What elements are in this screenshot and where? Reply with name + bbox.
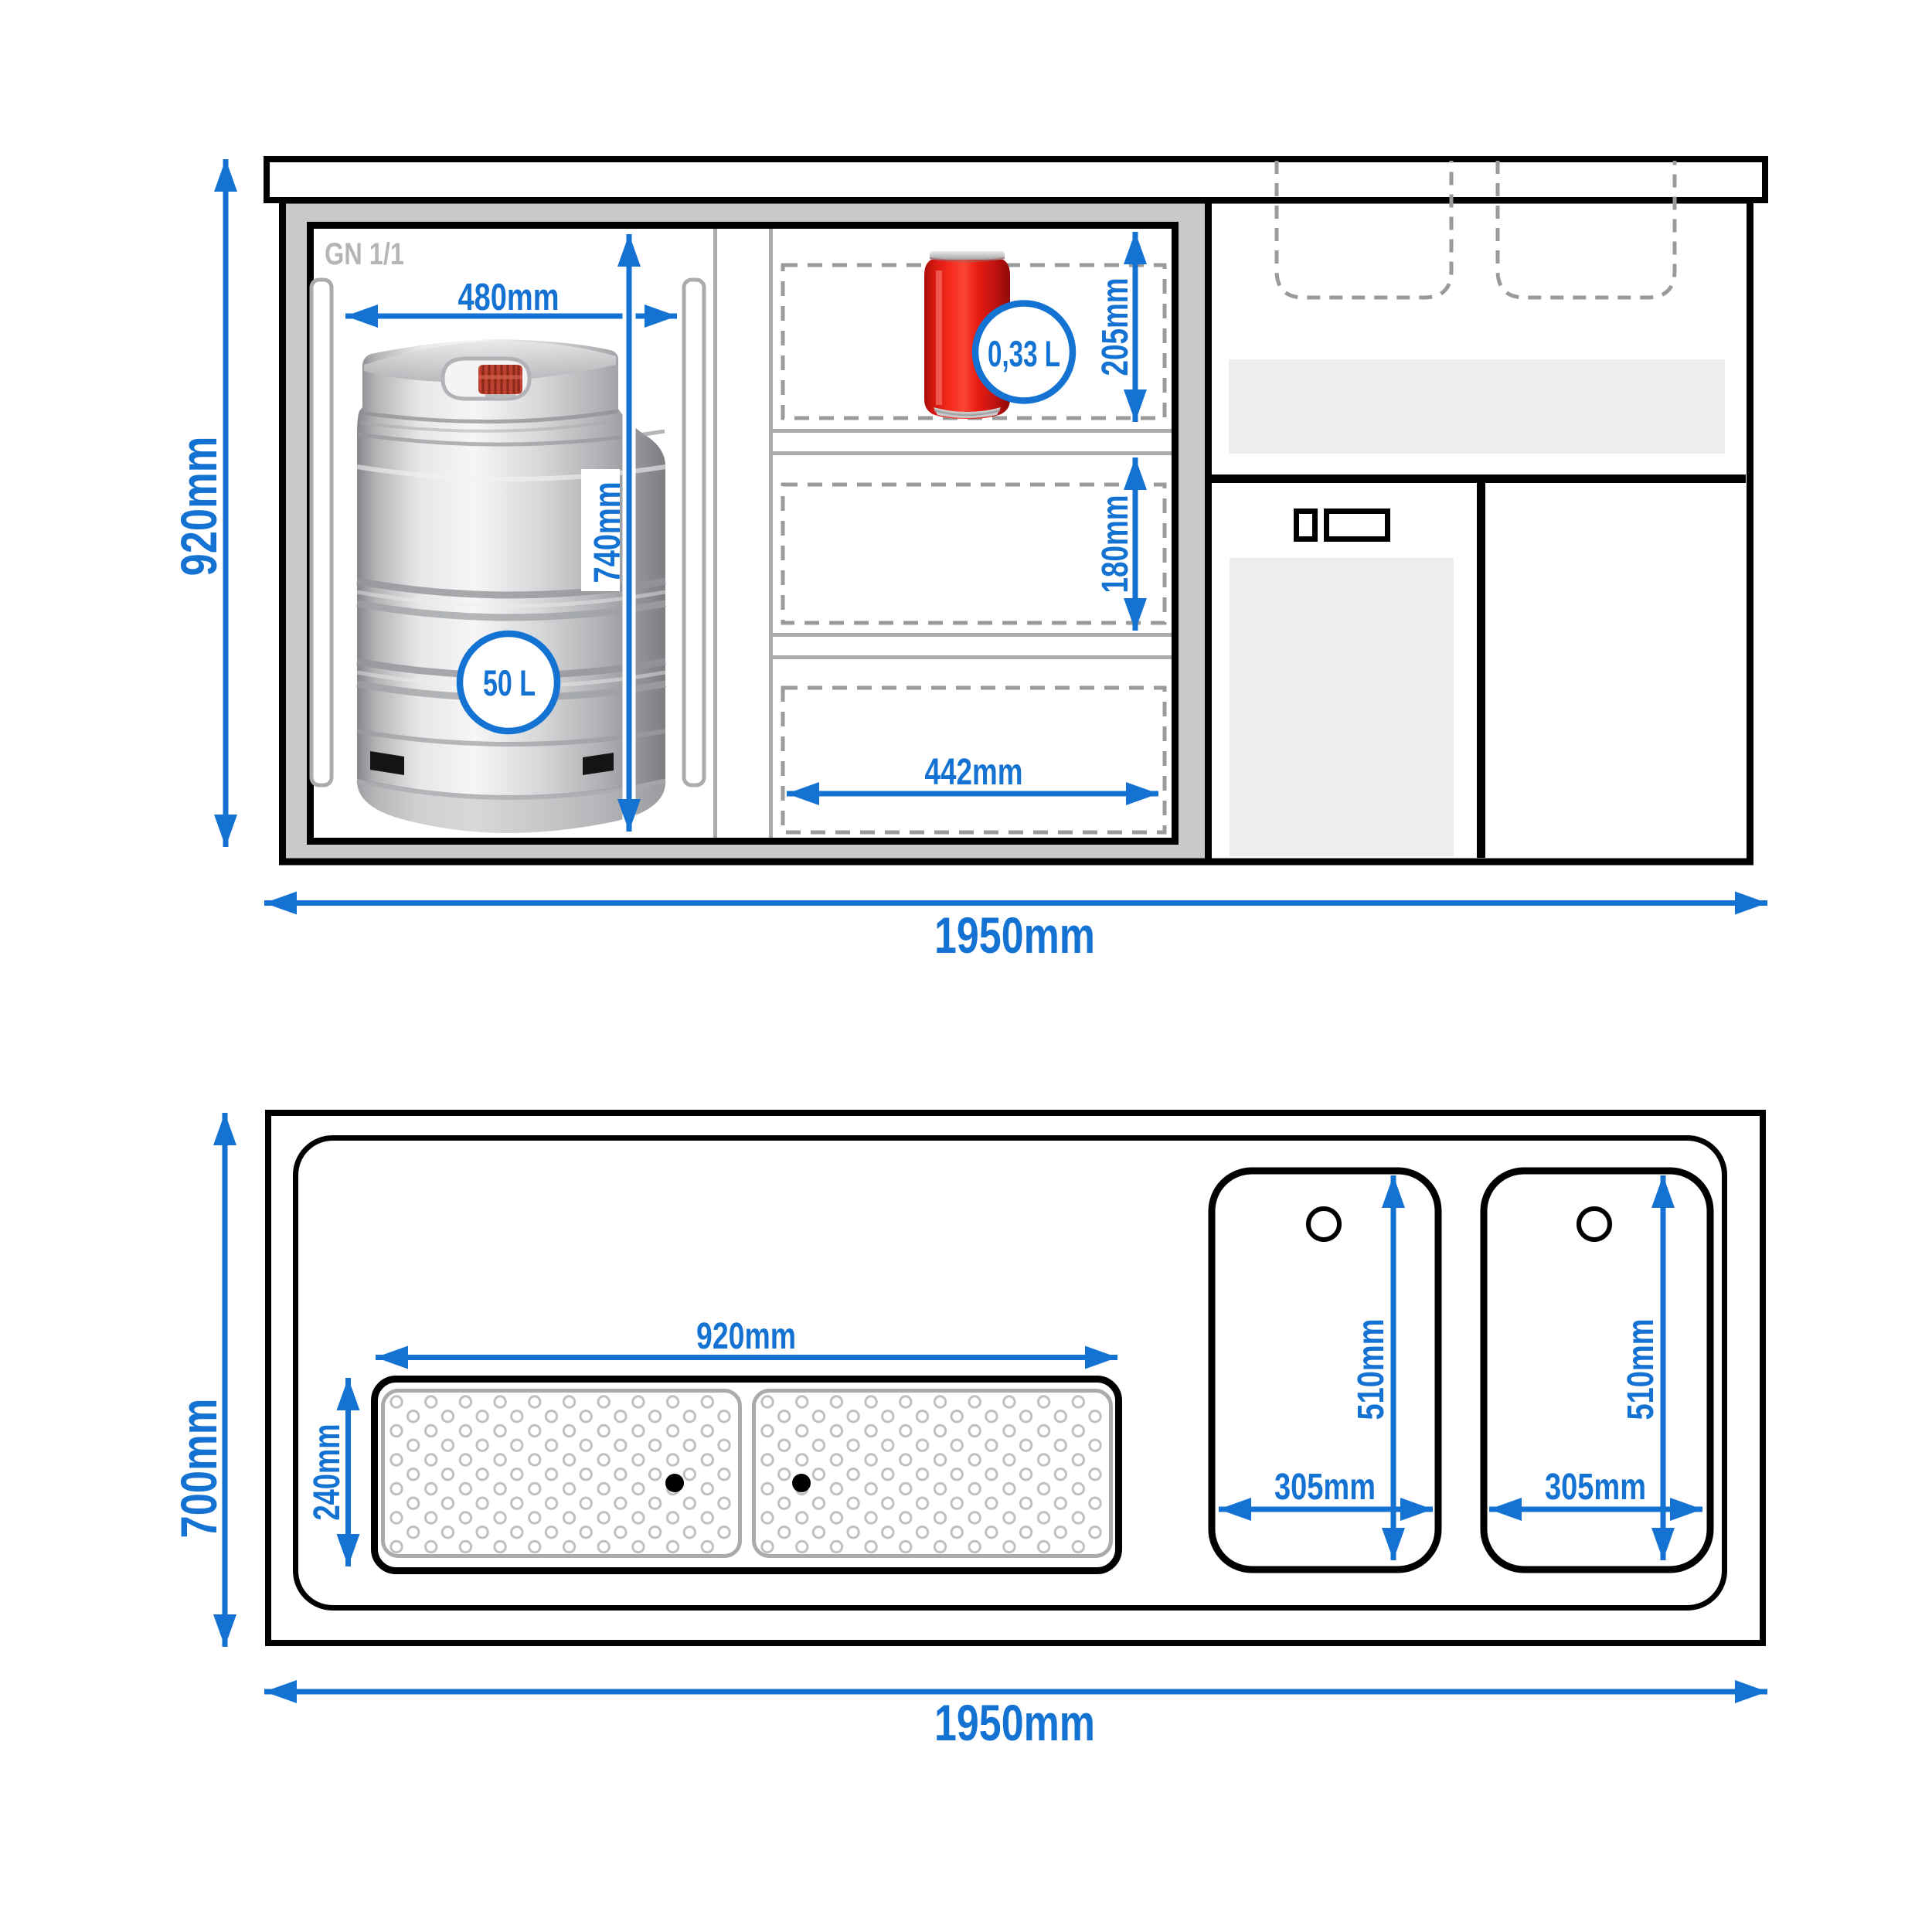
svg-text:50 L: 50 L — [483, 662, 536, 703]
svg-text:GN 1/1: GN 1/1 — [325, 237, 404, 271]
svg-text:480mm: 480mm — [458, 277, 560, 318]
svg-text:1950mm: 1950mm — [934, 906, 1095, 964]
svg-text:240mm: 240mm — [307, 1424, 348, 1521]
svg-text:1950mm: 1950mm — [934, 1694, 1095, 1751]
svg-text:305mm: 305mm — [1274, 1467, 1376, 1508]
svg-text:305mm: 305mm — [1545, 1467, 1646, 1508]
svg-text:205mm: 205mm — [1095, 278, 1136, 376]
svg-text:740mm: 740mm — [587, 482, 628, 583]
svg-text:180mm: 180mm — [1095, 495, 1136, 594]
svg-text:920mm: 920mm — [170, 437, 227, 577]
svg-text:510mm: 510mm — [1621, 1319, 1662, 1420]
svg-text:510mm: 510mm — [1351, 1319, 1392, 1420]
svg-text:700mm: 700mm — [170, 1399, 227, 1539]
svg-text:442mm: 442mm — [925, 752, 1023, 793]
svg-text:0,33 L: 0,33 L — [988, 333, 1060, 374]
svg-text:920mm: 920mm — [696, 1316, 796, 1357]
